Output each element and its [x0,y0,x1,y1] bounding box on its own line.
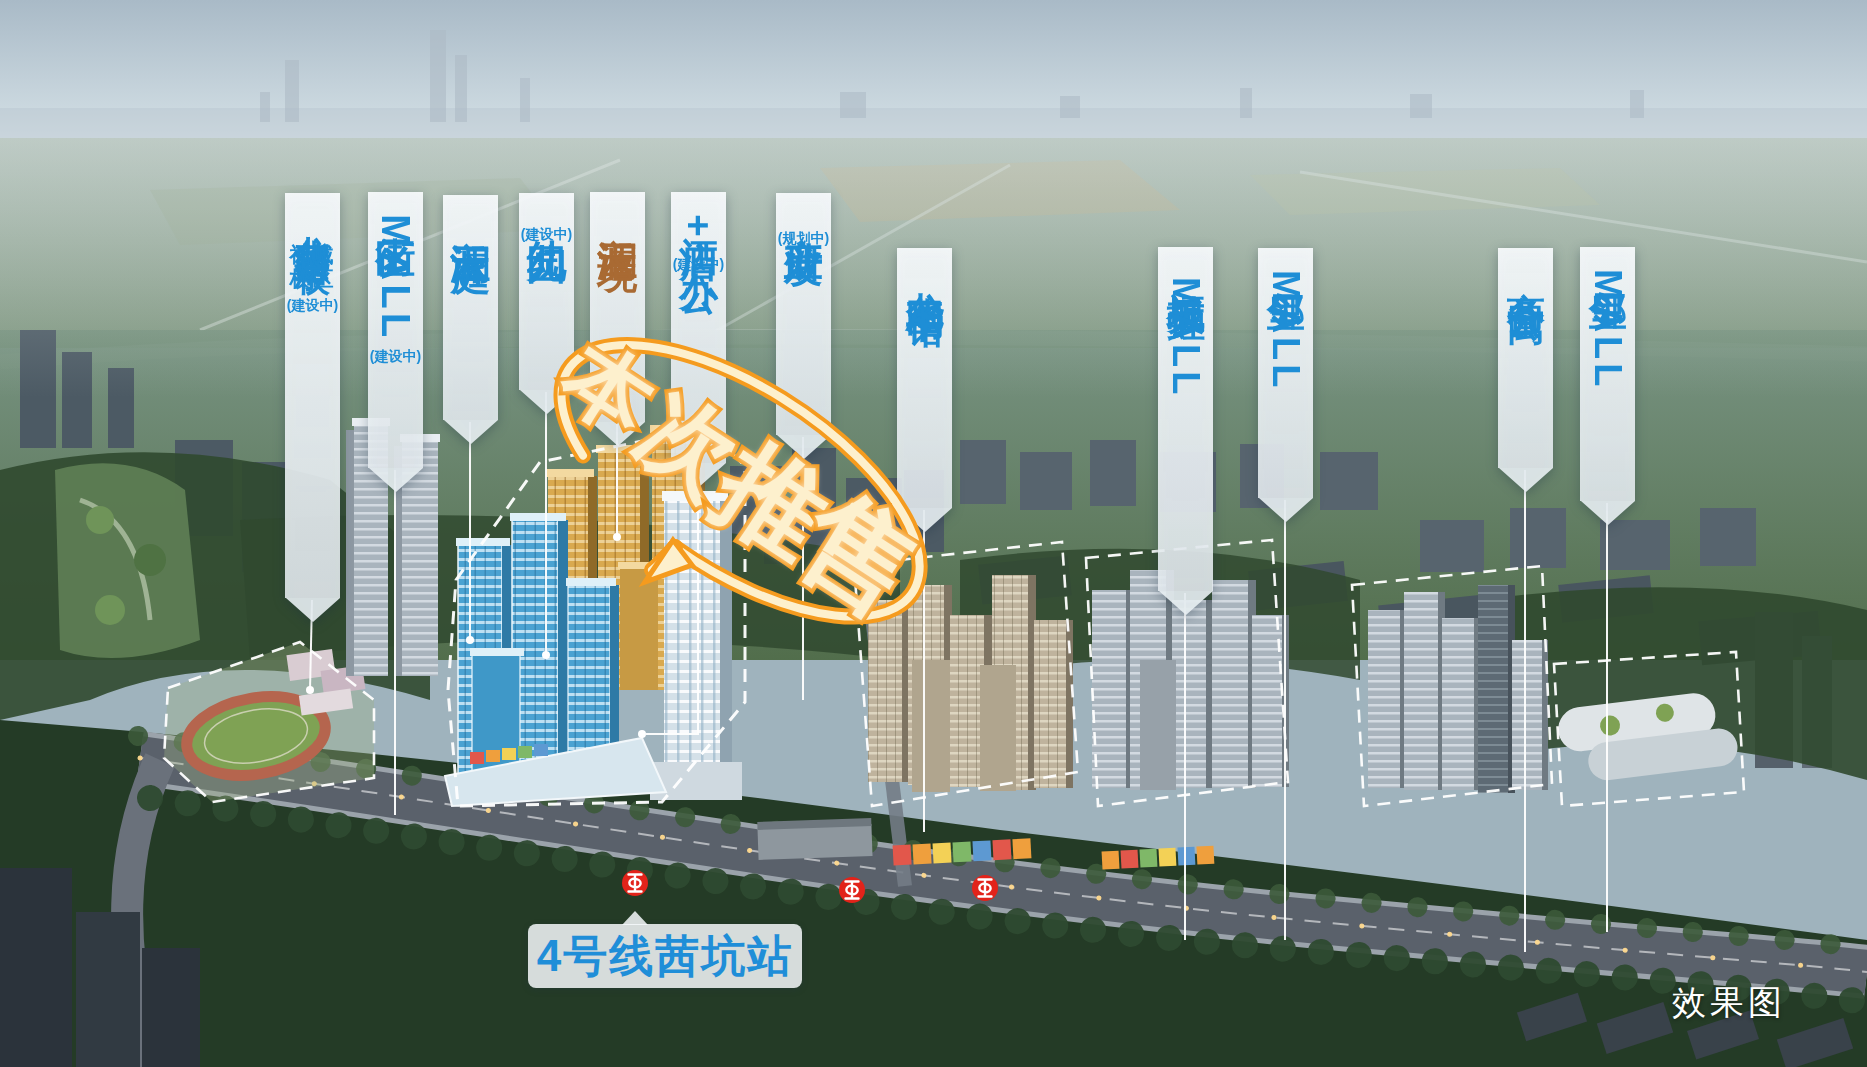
promo-badge: 本次推售 [0,0,1867,1067]
aerial-render-scene: 龙华外国语学校 福城校区 (建设中) 街区MALL (建设中) 澜汇云庭 幼儿园… [0,0,1867,1067]
render-watermark: 效果图 [1672,980,1786,1026]
